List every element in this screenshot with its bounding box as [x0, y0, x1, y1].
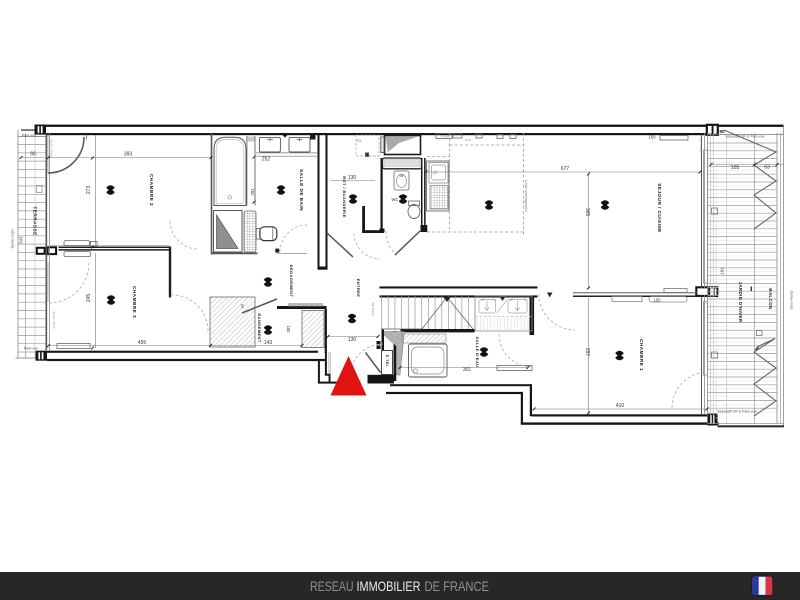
svg-text:130: 130: [348, 175, 357, 181]
svg-text:FOUR: FOUR: [441, 135, 450, 139]
svg-text:Pare-vue: Pare-vue: [22, 133, 37, 137]
svg-text:245: 245: [86, 294, 92, 303]
svg-text:Garde-corps: Garde-corps: [790, 291, 794, 310]
svg-text:HSP 2.50m: HSP 2.50m: [702, 300, 706, 316]
svg-text:94: 94: [400, 174, 404, 178]
svg-text:Garde-corps: Garde-corps: [11, 229, 15, 248]
svg-text:273: 273: [86, 186, 92, 195]
svg-text:Seuil + 25cm: Seuil + 25cm: [50, 139, 54, 157]
svg-text:287: 287: [584, 348, 590, 357]
svg-text:90: 90: [240, 304, 244, 308]
svg-text:ENTREE: ENTREE: [356, 279, 361, 298]
svg-text:143: 143: [264, 340, 273, 346]
svg-text:DEGAGEMENT: DEGAGEMENT: [289, 265, 294, 298]
svg-text:HSP 2.50m: HSP 2.50m: [699, 137, 703, 153]
svg-text:Pare-vue: Pare-vue: [24, 346, 39, 350]
svg-text:CHAMBRE 3: CHAMBRE 3: [131, 286, 137, 318]
svg-text:677: 677: [561, 166, 570, 172]
svg-text:DE FRANCE: DE FRANCE: [425, 579, 490, 594]
svg-text:150: 150: [649, 135, 657, 140]
svg-text:100: 100: [286, 326, 291, 334]
svg-text:CLX: CLX: [465, 138, 471, 142]
svg-text:Limite aménagement: Limite aménagement: [524, 180, 528, 212]
svg-text:JARDIN D'HIVER: JARDIN D'HIVER: [738, 282, 743, 323]
svg-text:TERRASSE: TERRASSE: [32, 206, 38, 236]
svg-text:301: 301: [463, 367, 472, 373]
svg-text:Séparatif OF & Pare-vue: Séparatif OF & Pare-vue: [725, 135, 764, 139]
svg-text:410: 410: [616, 403, 625, 409]
svg-text:130: 130: [348, 337, 357, 343]
svg-text:90: 90: [719, 129, 725, 134]
svg-text:150: 150: [654, 298, 662, 303]
svg-text:543: 543: [19, 236, 24, 244]
svg-text:RESEAU: RESEAU: [310, 579, 354, 594]
svg-text:SALLE DE BAIN: SALLE DE BAIN: [298, 169, 304, 211]
svg-text:291: 291: [250, 188, 255, 196]
svg-text:BALCON: BALCON: [768, 288, 773, 309]
svg-text:393: 393: [124, 152, 133, 158]
svg-text:WC: WC: [392, 197, 399, 202]
svg-text:Séparatif OF & Pare-vue: Séparatif OF & Pare-vue: [717, 410, 756, 414]
svg-text:63: 63: [764, 165, 770, 171]
svg-text:Nb 14x18: Nb 14x18: [371, 303, 375, 316]
svg-text:IMMOBILIER: IMMOBILIER: [357, 579, 421, 594]
svg-text:RGT / BUANDERIE: RGT / BUANDERIE: [342, 176, 347, 218]
svg-text:707: 707: [720, 267, 725, 275]
svg-text:Seuil + 25cm: Seuil + 25cm: [52, 311, 56, 329]
svg-text:455: 455: [138, 340, 147, 346]
svg-text:CHAMBRE 1: CHAMBRE 1: [638, 339, 644, 371]
svg-text:RANGEMENT: RANGEMENT: [257, 313, 262, 343]
svg-text:252: 252: [262, 157, 271, 163]
svg-text:LL: LL: [357, 138, 362, 143]
svg-text:SEJOUR / CUISINE: SEJOUR / CUISINE: [656, 183, 662, 233]
svg-text:66: 66: [30, 152, 36, 158]
svg-text:365: 365: [584, 208, 590, 217]
svg-text:CHAMBRE 2: CHAMBRE 2: [148, 174, 154, 206]
svg-text:105: 105: [731, 165, 740, 171]
svg-text:E.TEL: E.TEL: [385, 355, 389, 368]
